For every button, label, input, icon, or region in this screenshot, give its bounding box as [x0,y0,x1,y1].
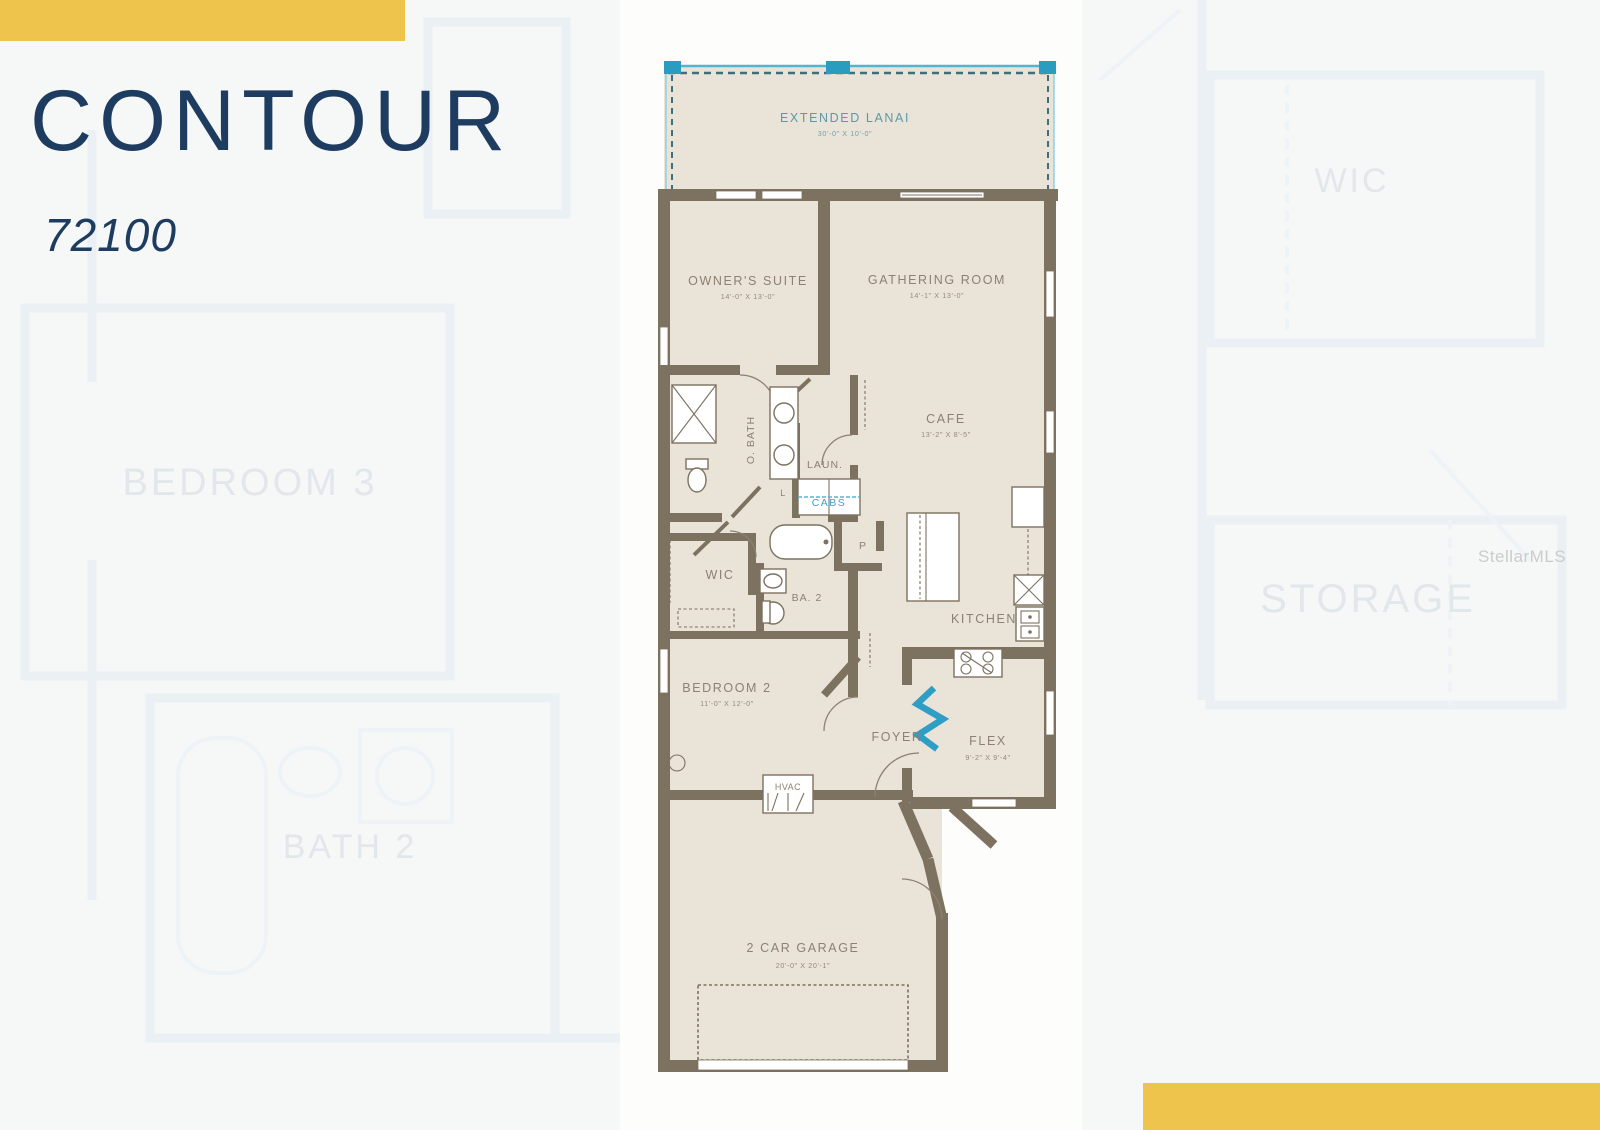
label-wic: WIC [705,568,734,582]
page-title: CONTOUR [30,78,512,164]
label-linen: L [780,488,786,498]
label-bedroom2: BEDROOM 2 [682,681,771,695]
label-cabs: CABS [812,497,847,509]
dims-garage: 20'-0" X 20'-1" [776,961,830,970]
dims-cafe: 13'-2" X 8'-5" [921,430,971,439]
lanai-post-right [1039,61,1056,74]
label-bath2: BA. 2 [792,592,823,604]
label-hvac: HVAC [775,782,801,792]
watermark: StellarMLS [1478,547,1566,567]
label-pantry: P [859,540,867,552]
lanai-post-left [664,61,681,74]
ghost-room-bath2: BATH 2 [283,828,418,866]
kitchen-island [907,513,959,601]
fridge [1012,487,1044,527]
label-gathering-room: GATHERING ROOM [868,273,1006,287]
ghost-room-bedroom3: BEDROOM 3 [122,462,377,504]
label-lanai: EXTENDED LANAI [780,111,910,125]
dims-flex: 9'-2" X 9'-4" [965,753,1010,762]
main-floorplan: EXTENDED LANAI 30'-0" X 10'-0" OWNER'S S… [620,35,1080,1075]
ghost-room-storage: STORAGE [1260,577,1476,621]
bathtub [770,525,832,559]
label-garage: 2 CAR GARAGE [747,941,860,955]
label-owners-bath: O. BATH [745,416,757,464]
dims-owners-suite: 14'-0" X 13'-0" [721,292,775,301]
label-laundry: LAUN. [807,459,843,471]
dims-lanai: 30'-0" X 10'-0" [818,129,872,138]
model-number: 72100 [44,208,177,262]
top-left-accent-bar [0,0,405,41]
floorplan-marketing-page: BEDROOM 3 BATH 2 WIC STORAGE CONTOUR 721… [0,0,1600,1130]
bottom-right-accent-bar [1143,1083,1600,1130]
label-owners-suite: OWNER'S SUITE [688,274,808,288]
range [954,649,1002,677]
dims-bedroom2: 11'-0" X 12'-0" [700,699,754,708]
label-cafe: CAFE [926,412,966,426]
label-foyer: FOYER [871,730,922,744]
label-kitchen: KITCHEN [951,612,1017,626]
ghost-room-wic: WIC [1314,162,1389,200]
lanai-post-middle [826,61,850,74]
dims-gathering-room: 14'-1" X 13'-0" [910,291,964,300]
garage-door [698,1060,908,1070]
prep-sink [1016,607,1044,641]
label-flex: FLEX [969,734,1007,748]
